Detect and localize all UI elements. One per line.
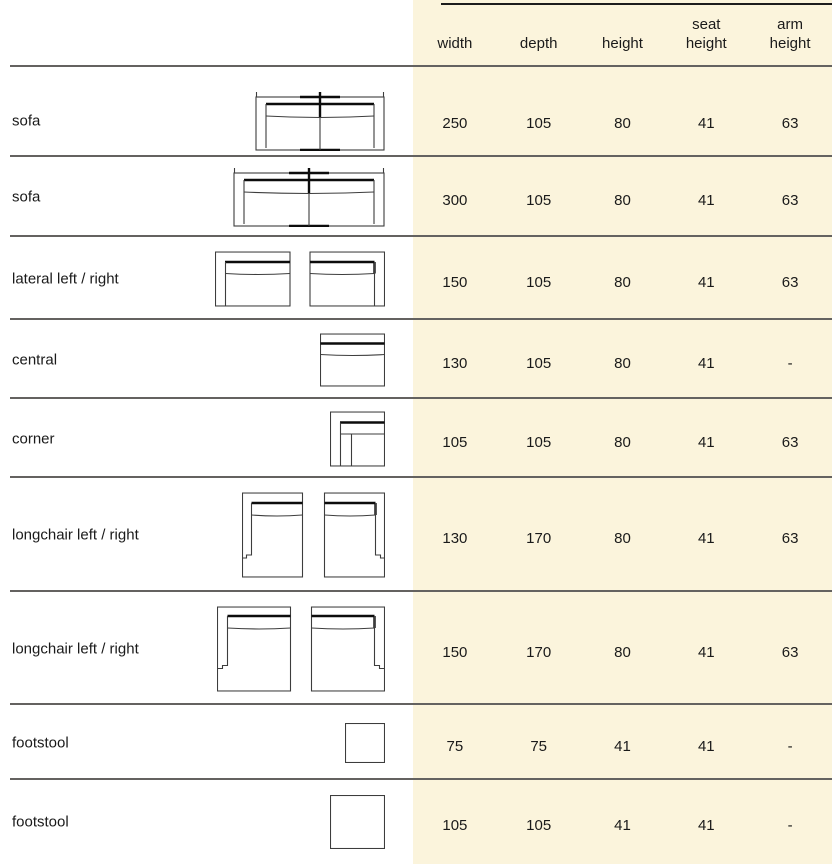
- arm-height-value: 63: [748, 399, 832, 478]
- longchair-150-pair-plan-icon: [217, 606, 385, 691]
- arm-height-value: -: [748, 320, 832, 399]
- depth-value: 105: [497, 67, 581, 157]
- central-plan-icon: [320, 333, 385, 386]
- dimension-values: 105 105 80 41 63: [413, 399, 832, 478]
- col-header-depth: depth: [497, 0, 581, 67]
- height-value: 80: [581, 592, 665, 705]
- sofa-2seat-300-plan-icon: [233, 167, 385, 227]
- arm-height-value: 63: [748, 592, 832, 705]
- lateral-pair-plan-icon: [215, 251, 385, 306]
- arm-height-value: 63: [748, 67, 832, 157]
- footstool-105-plan-icon: [330, 795, 385, 849]
- table-row-longchair-130: longchair left / right 130 170 80: [0, 478, 832, 592]
- seat-height-value: 41: [664, 780, 748, 864]
- spec-sheet-page: width depth height seatheight armheight …: [0, 0, 832, 864]
- dimension-values: 105 105 41 41 -: [413, 780, 832, 864]
- seat-height-value: 41: [664, 237, 748, 320]
- column-headers: width depth height seatheight armheight: [413, 0, 832, 67]
- col-header-height: height: [581, 0, 665, 67]
- seat-height-value: 41: [664, 320, 748, 399]
- seat-height-value: 41: [664, 478, 748, 592]
- height-value: 41: [581, 780, 665, 864]
- col-header-seat-height: seatheight: [664, 0, 748, 67]
- width-value: 300: [413, 157, 497, 237]
- row-label: longchair left / right: [12, 640, 139, 657]
- width-value: 105: [413, 399, 497, 478]
- col-header-width: width: [413, 0, 497, 67]
- dimension-values: 300 105 80 41 63: [413, 157, 832, 237]
- dimension-values: 130 105 80 41 -: [413, 320, 832, 399]
- height-value: 80: [581, 67, 665, 157]
- width-value: 250: [413, 67, 497, 157]
- table-row-sofa-250: sofa 250 105 80: [0, 67, 832, 157]
- seat-height-value: 41: [664, 705, 748, 780]
- table-row-footstool-105: footstool 105 105 41 41 -: [0, 780, 832, 864]
- depth-value: 105: [497, 157, 581, 237]
- depth-value: 105: [497, 780, 581, 864]
- depth-value: 170: [497, 478, 581, 592]
- corner-plan-icon: [330, 411, 385, 466]
- height-value: 80: [581, 320, 665, 399]
- seat-height-value: 41: [664, 592, 748, 705]
- depth-value: 105: [497, 320, 581, 399]
- col-header-arm-height: armheight: [748, 0, 832, 67]
- table-row-central: central 130 105 80 41 -: [0, 320, 832, 399]
- row-label: lateral left / right: [12, 270, 119, 287]
- height-value: 80: [581, 237, 665, 320]
- row-label: corner: [12, 430, 55, 447]
- footstool-75-plan-icon: [345, 723, 385, 763]
- table-row-sofa-300: sofa 300 105 80: [0, 157, 832, 237]
- depth-value: 170: [497, 592, 581, 705]
- row-label: central: [12, 351, 57, 368]
- width-value: 75: [413, 705, 497, 780]
- table-row-footstool-75: footstool 75 75 41 41 -: [0, 705, 832, 780]
- table-header-row: width depth height seatheight armheight: [0, 0, 832, 67]
- seat-height-value: 41: [664, 157, 748, 237]
- sofa-2seat-250-plan-icon: [255, 91, 385, 151]
- width-value: 150: [413, 592, 497, 705]
- height-value: 80: [581, 157, 665, 237]
- depth-value: 75: [497, 705, 581, 780]
- width-value: 150: [413, 237, 497, 320]
- row-label: sofa: [12, 189, 40, 206]
- height-value: 80: [581, 399, 665, 478]
- row-label: footstool: [12, 814, 69, 831]
- arm-height-value: 63: [748, 478, 832, 592]
- longchair-130-pair-plan-icon: [242, 493, 385, 578]
- table-row-lateral: lateral left / right 150 105 80: [0, 237, 832, 320]
- arm-height-value: 63: [748, 157, 832, 237]
- depth-value: 105: [497, 237, 581, 320]
- dimension-values: 150 170 80 41 63: [413, 592, 832, 705]
- row-label: sofa: [12, 113, 40, 130]
- table-row-corner: corner 105 105 80 41 63: [0, 399, 832, 478]
- height-value: 41: [581, 705, 665, 780]
- width-value: 105: [413, 780, 497, 864]
- dimension-values: 130 170 80 41 63: [413, 478, 832, 592]
- dimension-values: 250 105 80 41 63: [413, 67, 832, 157]
- dimensions-table: width depth height seatheight armheight …: [0, 0, 832, 864]
- width-value: 130: [413, 478, 497, 592]
- arm-height-value: -: [748, 705, 832, 780]
- seat-height-value: 41: [664, 67, 748, 157]
- dimension-values: 150 105 80 41 63: [413, 237, 832, 320]
- seat-height-value: 41: [664, 399, 748, 478]
- height-value: 80: [581, 478, 665, 592]
- table-row-longchair-150: longchair left / right 150 170 80: [0, 592, 832, 705]
- dimension-values: 75 75 41 41 -: [413, 705, 832, 780]
- depth-value: 105: [497, 399, 581, 478]
- width-value: 130: [413, 320, 497, 399]
- arm-height-value: 63: [748, 237, 832, 320]
- row-label: footstool: [12, 734, 69, 751]
- arm-height-value: -: [748, 780, 832, 864]
- row-label: longchair left / right: [12, 527, 139, 544]
